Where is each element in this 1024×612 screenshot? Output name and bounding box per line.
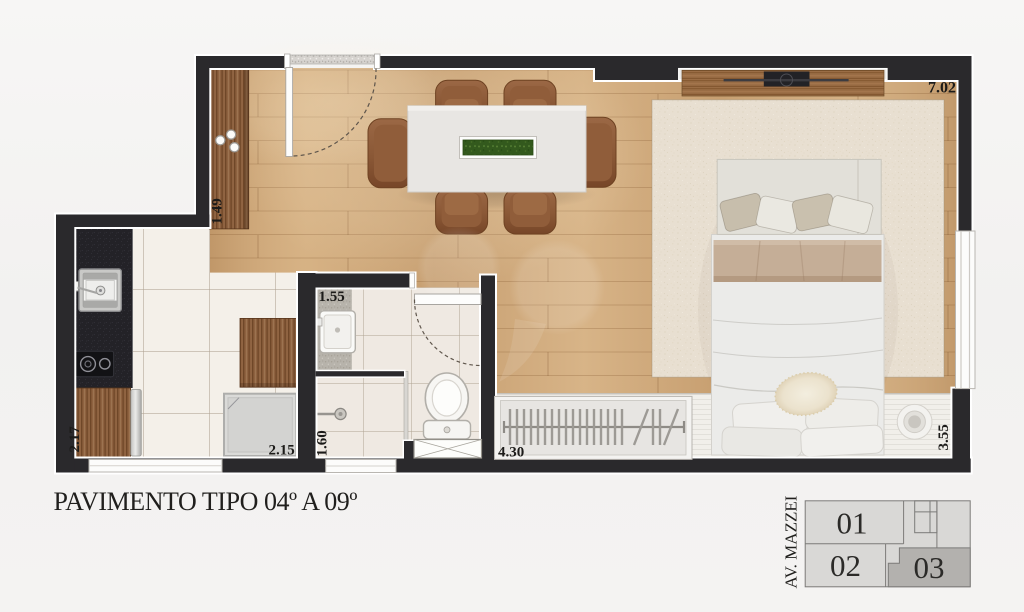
svg-text:7.02: 7.02	[928, 80, 956, 97]
svg-text:PAVIMENTO TIPO 04º A 09º: PAVIMENTO TIPO 04º A 09º	[54, 487, 358, 516]
svg-text:3.55: 3.55	[936, 424, 952, 450]
svg-text:03: 03	[914, 550, 945, 585]
svg-text:AV. MAZZEI: AV. MAZZEI	[782, 495, 801, 588]
svg-text:02: 02	[830, 548, 861, 583]
svg-text:1.60: 1.60	[315, 430, 331, 456]
svg-text:2.15: 2.15	[269, 443, 295, 459]
svg-text:1.49: 1.49	[210, 198, 226, 224]
svg-text:2.17: 2.17	[67, 426, 83, 453]
svg-text:1.55: 1.55	[319, 289, 345, 305]
svg-text:4.30: 4.30	[498, 445, 524, 461]
svg-text:01: 01	[837, 506, 868, 541]
